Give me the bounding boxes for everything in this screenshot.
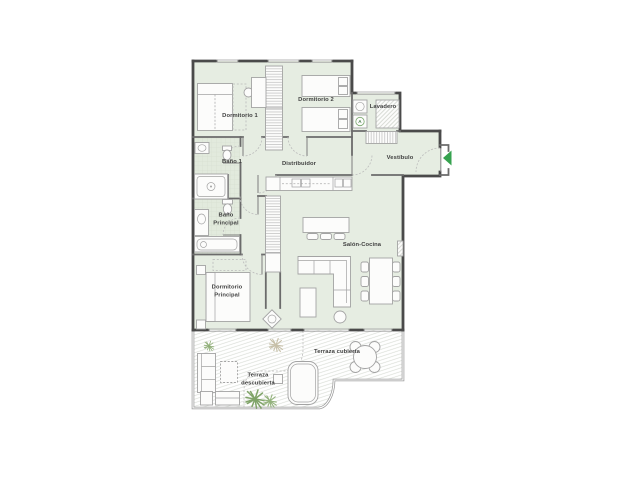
tv-unit <box>300 288 316 317</box>
washer <box>353 100 367 113</box>
room-label-lavadero: Lavadero <box>370 104 397 112</box>
room-label-distribuidor: Distribuidor <box>282 161 316 169</box>
room-label-terraza-cubierta: Terraza cubierta <box>314 349 360 357</box>
nightstand <box>197 320 206 329</box>
outdoor-sofa <box>198 354 216 393</box>
desk <box>252 78 267 108</box>
appliance-a-label: A <box>358 119 361 125</box>
room-label-salon-cocina: Salón-Cocina <box>343 242 381 250</box>
room-label-dormitorio-principal: Dormitorio Principal <box>205 284 249 299</box>
stool <box>321 234 332 240</box>
chair <box>361 277 369 287</box>
floor-plan-canvas: Dormitorio 1 Dormitorio 2 Lavadero Vestí… <box>0 0 640 480</box>
chair <box>393 277 401 287</box>
room-label-dormitorio-1: Dormitorio 1 <box>222 113 258 121</box>
outdoor-seat <box>201 392 213 406</box>
chair <box>361 291 369 301</box>
floor-plan-drawing <box>0 0 640 480</box>
planter <box>288 362 318 405</box>
chair <box>393 262 401 272</box>
kitchen-island <box>303 218 349 233</box>
vanity <box>195 210 209 236</box>
entrance-arrow-icon <box>443 151 452 166</box>
chair <box>361 262 369 272</box>
toilet <box>223 200 233 205</box>
nightstand <box>197 266 206 275</box>
stool <box>307 234 318 240</box>
room-label-bano-1: Baño 1 <box>222 159 242 167</box>
room-label-dormitorio-2: Dormitorio 2 <box>298 97 334 105</box>
side-table <box>334 311 346 323</box>
sink <box>195 143 209 154</box>
room-label-bano-principal: Baño Principal <box>208 212 244 227</box>
room-label-vestibulo: Vestíbulo <box>387 155 414 163</box>
round-table-set <box>350 342 380 373</box>
dining-table <box>370 258 393 304</box>
chair <box>393 291 401 301</box>
stool <box>334 234 345 240</box>
room-label-terraza-descubierta: Terraza descubierta <box>234 372 282 387</box>
